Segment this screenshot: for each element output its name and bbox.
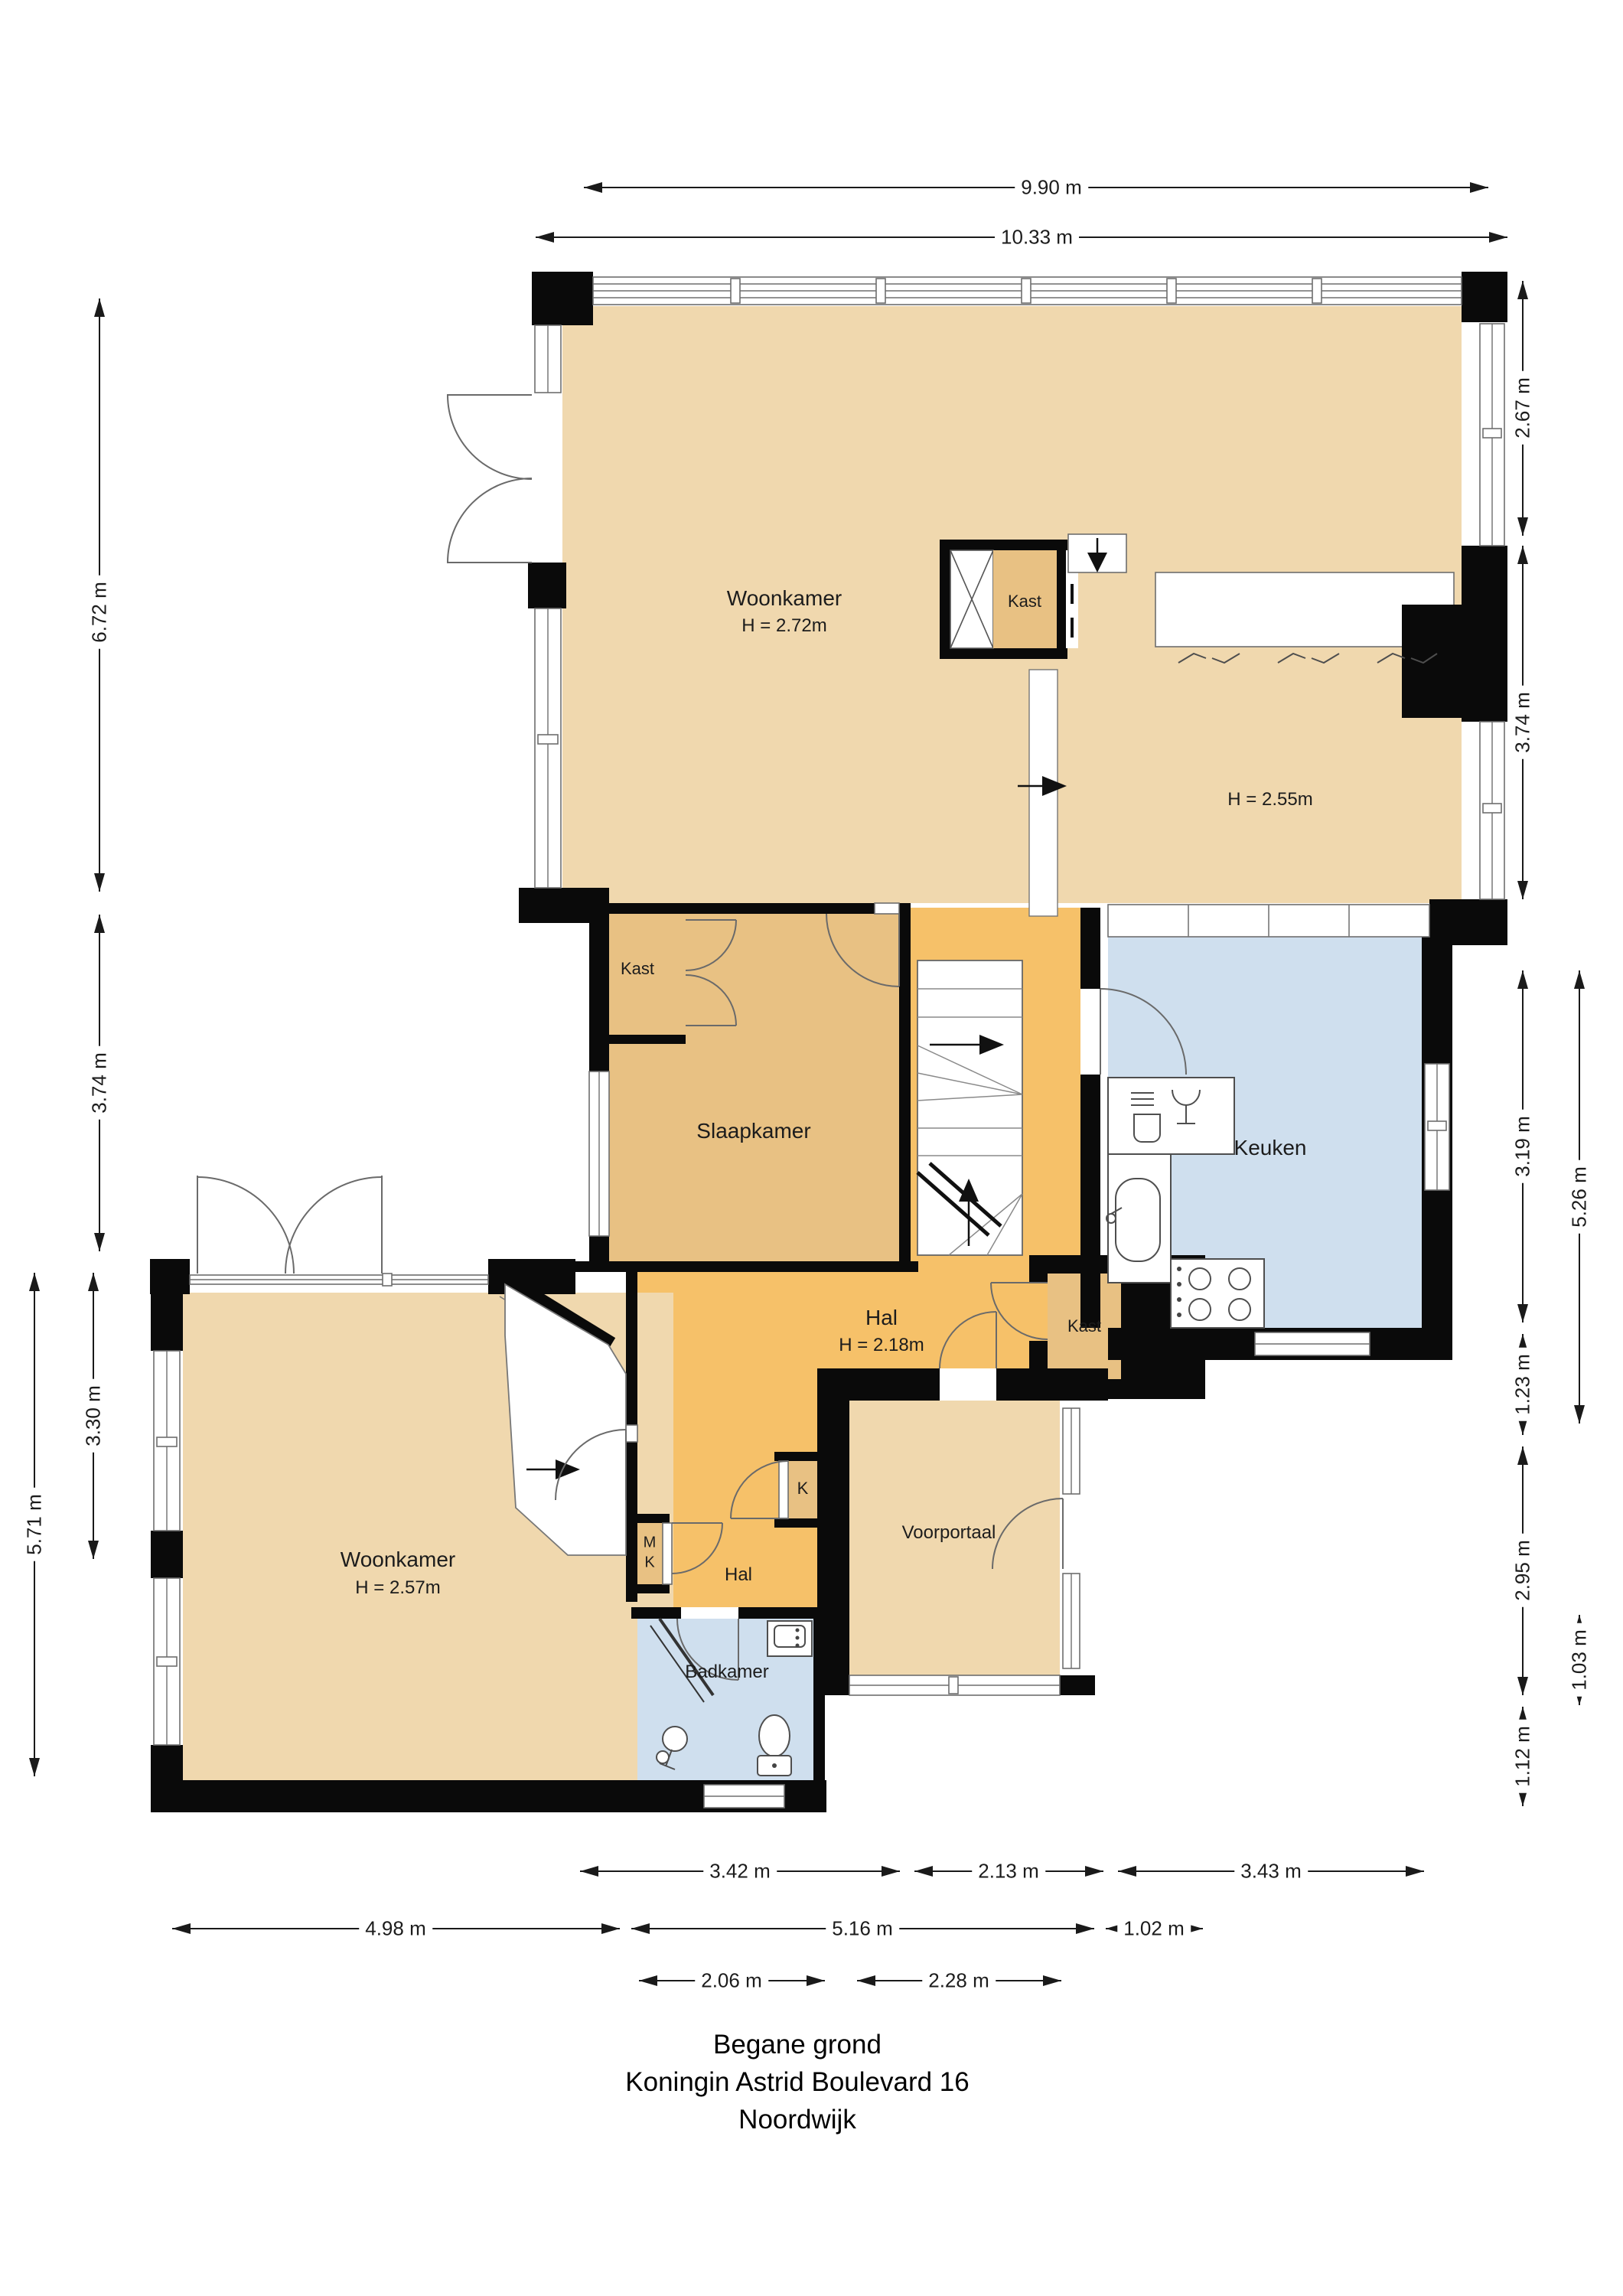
door-frame-k (779, 1461, 788, 1518)
label-woonkamer-bottom: Woonkamer (341, 1548, 455, 1572)
window-top (593, 277, 1462, 305)
dim-left-571: 5.71 m (23, 1488, 47, 1561)
title-floor: Begane grond (713, 2030, 882, 2060)
label-keuken: Keuken (1234, 1136, 1307, 1160)
dim-bottom-228: 2.28 m (922, 1969, 996, 1993)
title-city: Noordwijk (738, 2105, 856, 2135)
label-kast-box: Kast (1008, 592, 1041, 612)
label-voorportaal: Voorportaal (902, 1522, 996, 1544)
label-k-closet: K (797, 1479, 809, 1499)
label-slaapkamer: Slaapkamer (696, 1119, 810, 1143)
label-woonkamer-top-height: H = 2.72m (741, 615, 826, 637)
dim-bottom-102: 1.02 m (1117, 1917, 1191, 1941)
dim-left-374: 3.74 m (88, 1046, 112, 1120)
label-kast-hal: Kast (1067, 1316, 1101, 1336)
window-badkamer (704, 1785, 784, 1808)
floor-plan-drawing (0, 0, 1623, 2296)
french-doors-bottom-left (197, 1176, 382, 1274)
washbasin-icon (768, 1621, 812, 1656)
dim-right-526: 5.26 m (1568, 1160, 1592, 1234)
dim-right-295: 2.95 m (1511, 1534, 1535, 1607)
window-keuken-right (1425, 1064, 1449, 1190)
dim-left-330: 3.30 m (82, 1379, 106, 1453)
door-frame-bay (626, 1425, 637, 1442)
label-mk-m: M (644, 1534, 657, 1552)
dishwasher-icon (1108, 1078, 1234, 1154)
toilet-icon (758, 1715, 791, 1776)
stairs (917, 960, 1022, 1255)
dim-top-990: 9.90 m (1015, 176, 1088, 200)
dim-right-267: 2.67 m (1511, 371, 1535, 445)
dim-left-672: 6.72 m (88, 576, 112, 649)
door-frame-mk (663, 1523, 672, 1584)
french-doors-top-left (447, 395, 532, 563)
stairs-landing (1068, 534, 1126, 572)
dim-top-1033: 10.33 m (995, 226, 1079, 249)
label-badkamer: Badkamer (685, 1662, 768, 1683)
label-mk-k: K (644, 1554, 654, 1572)
floor-plan: Woonkamer H = 2.72m H = 2.55m Kast Kast … (0, 0, 1623, 2296)
dim-right-123: 1.23 m (1511, 1348, 1535, 1421)
dim-bottom-498: 4.98 m (359, 1917, 432, 1941)
kitchen-cabinets (1108, 905, 1429, 937)
window-sill-bottom-block (190, 1274, 488, 1286)
window-keuken-bottom (1255, 1332, 1370, 1355)
dim-bottom-213: 2.13 m (972, 1860, 1045, 1883)
label-kast-top: Kast (621, 959, 654, 979)
dim-bottom-342: 3.42 m (703, 1860, 777, 1883)
title-address: Koningin Astrid Boulevard 16 (625, 2067, 969, 2098)
dim-right-112: 1.12 m (1511, 1720, 1535, 1793)
dim-right-374: 3.74 m (1511, 686, 1535, 759)
label-hal: Hal (865, 1306, 898, 1330)
dim-bottom-343: 3.43 m (1234, 1860, 1308, 1883)
label-woonkamer-bottom-height: H = 2.57m (355, 1577, 440, 1599)
dim-bottom-516: 5.16 m (826, 1917, 899, 1941)
label-woonkamer-top: Woonkamer (727, 586, 842, 611)
dim-right-103: 1.03 m (1568, 1623, 1592, 1697)
label-hal-height: H = 2.18m (839, 1335, 924, 1356)
dim-right-319: 3.19 m (1511, 1110, 1535, 1183)
label-h255: H = 2.55m (1227, 789, 1312, 810)
window-slaapkamer (589, 1071, 609, 1236)
dim-bottom-206: 2.06 m (695, 1969, 768, 1993)
label-hal-small: Hal (725, 1564, 752, 1586)
door-frame-slaapkamer (875, 903, 899, 914)
sink-icon (1106, 1154, 1171, 1283)
stove-icon (1171, 1259, 1264, 1328)
